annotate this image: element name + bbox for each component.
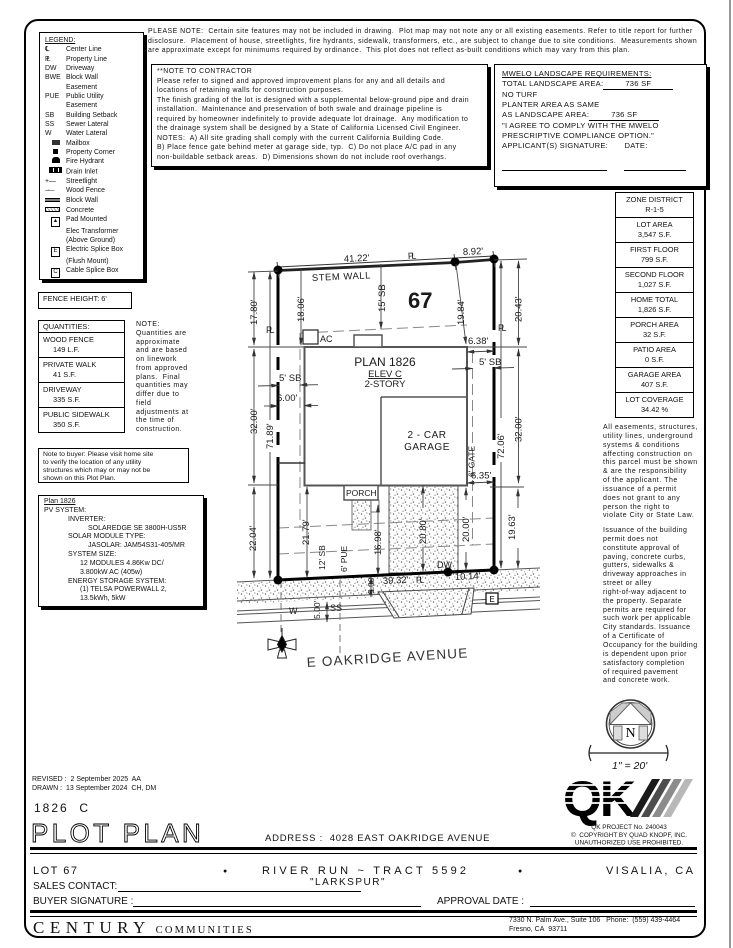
svg-text:17.80': 17.80'	[249, 299, 260, 325]
svg-text:19.84': 19.84'	[456, 299, 467, 325]
svg-text:32.00': 32.00'	[249, 408, 260, 434]
svg-text:6.00': 6.00'	[277, 393, 297, 404]
svg-text:18.06': 18.06'	[296, 296, 307, 322]
svg-text:PLAN 1826: PLAN 1826	[354, 355, 416, 369]
svg-text:DW: DW	[437, 560, 452, 570]
svg-text:QK: QK	[563, 771, 636, 827]
svg-text:© COPYRIGHT BY QUAD KNOPF, IN: © COPYRIGHT BY QUAD KNOPF, INC.	[571, 831, 687, 839]
svg-text:PORCH: PORCH	[346, 488, 377, 498]
svg-text:5' SB: 5' SB	[279, 373, 301, 384]
svg-text:PL: PL	[266, 325, 275, 335]
svg-text:QK PROJECT No. 240043: QK PROJECT No. 240043	[591, 824, 667, 831]
svg-text:6' PUE: 6' PUE	[339, 545, 349, 572]
svg-text:67: 67	[408, 288, 432, 313]
svg-text:W: W	[289, 606, 298, 616]
svg-text:6.38': 6.38'	[468, 336, 488, 347]
svg-text:16.98': 16.98'	[373, 529, 384, 555]
svg-text:STEM WALL: STEM WALL	[312, 270, 371, 284]
svg-text:AC: AC	[320, 334, 333, 344]
svg-text:19.63': 19.63'	[507, 514, 518, 540]
svg-text:UNAUTHORIZED USE PROHIBITED.: UNAUTHORIZED USE PROHIBITED.	[575, 840, 684, 847]
svg-text:SS: SS	[330, 603, 342, 613]
svg-text:39.32': 39.32'	[383, 575, 409, 587]
svg-text:PL: PL	[408, 251, 417, 261]
svg-text:22.04': 22.04'	[248, 525, 259, 551]
svg-text:20.00': 20.00'	[461, 516, 472, 542]
svg-text:PL: PL	[498, 323, 507, 333]
svg-text:E: E	[489, 595, 494, 604]
svg-text:6.35': 6.35'	[471, 471, 491, 482]
svg-text:8.92': 8.92'	[463, 246, 484, 258]
svg-text:E OAKRIDGE AVENUE: E OAKRIDGE AVENUE	[306, 645, 469, 670]
svg-text:5.00': 5.00'	[366, 575, 376, 594]
svg-text:2 - CAR: 2 - CAR	[407, 430, 446, 441]
svg-text:71.89': 71.89'	[265, 423, 276, 449]
svg-text:GARAGE: GARAGE	[404, 442, 450, 453]
svg-text:20.80': 20.80'	[418, 518, 429, 544]
svg-text:32.00': 32.00'	[514, 416, 525, 442]
svg-text:N: N	[625, 726, 635, 741]
svg-text:20.43': 20.43'	[514, 296, 525, 322]
svg-text:41.22': 41.22'	[344, 253, 370, 265]
svg-text:5' SB: 5' SB	[479, 357, 501, 368]
svg-text:21.79': 21.79'	[301, 519, 312, 545]
svg-text:2-STORY: 2-STORY	[365, 379, 406, 390]
svg-text:PL: PL	[416, 575, 425, 585]
svg-text:15' SB: 15' SB	[377, 284, 388, 312]
svg-text:72.06': 72.06'	[496, 433, 507, 459]
svg-text:5.00': 5.00'	[312, 600, 322, 619]
svg-text:12' SB: 12' SB	[317, 545, 327, 570]
svg-text:10.14': 10.14'	[455, 571, 481, 583]
